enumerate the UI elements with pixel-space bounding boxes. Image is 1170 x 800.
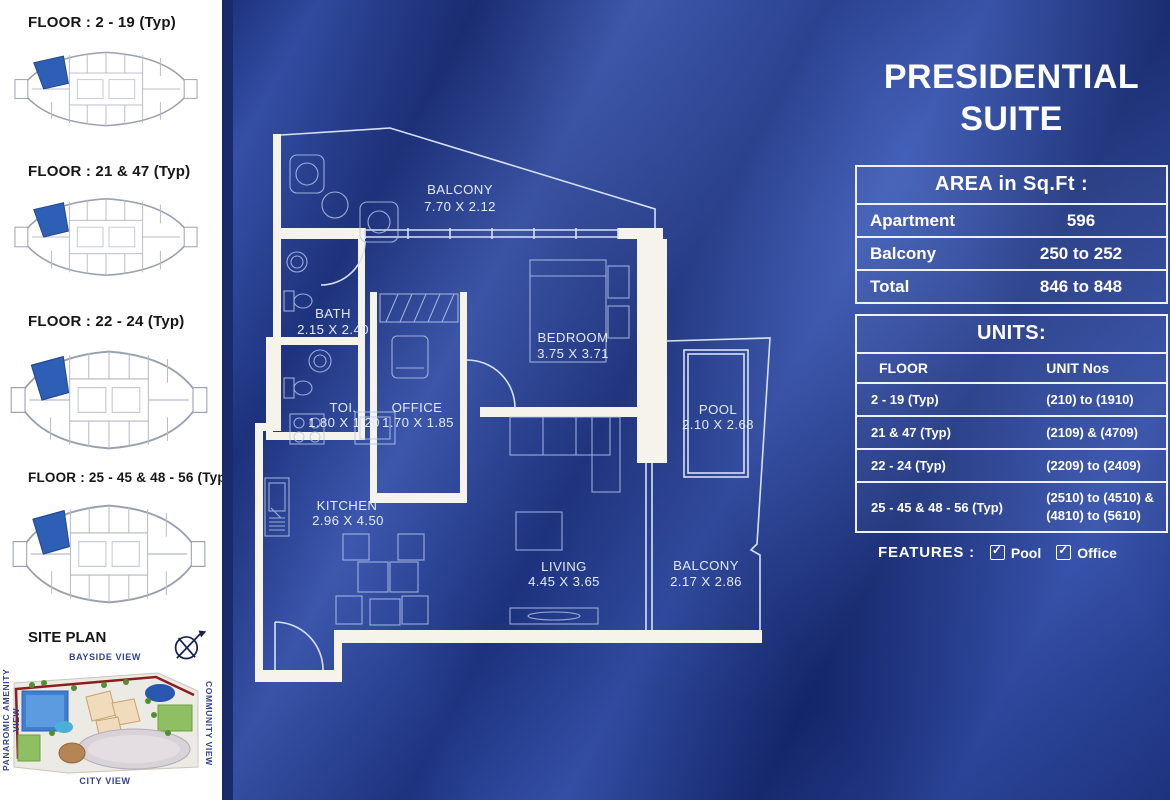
plan-furniture	[265, 155, 629, 625]
floor-plan-thumbnail-1	[12, 42, 200, 136]
office-checkbox-icon	[1056, 545, 1071, 560]
panaromic-amenity-view-label: PANAROMIC AMENITY VIEW	[1, 660, 21, 780]
area-value: 250 to 252	[996, 244, 1166, 264]
features-row: FEATURES : Pool Office	[878, 544, 1117, 561]
city-view-label: CITY VIEW	[35, 776, 175, 786]
site-plan-title: SITE PLAN	[28, 629, 106, 646]
area-row-apartment: Apartment 596	[857, 205, 1166, 238]
floor-plan: BALCONY 7.70 X 2.12 BATH 2.15 X 2.40 BED…	[240, 110, 800, 690]
units-col-units: UNIT Nos	[1036, 360, 1166, 376]
room-label-bath: BATH	[315, 306, 351, 321]
area-table: AREA in Sq.Ft : Apartment 596 Balcony 25…	[855, 165, 1168, 304]
area-value: 596	[996, 211, 1166, 231]
sidebar: FLOOR : 2 - 19 (Typ) FLOOR : 21 & 47 (Ty…	[0, 0, 222, 800]
features-label: FEATURES :	[878, 544, 975, 561]
units-floor: 22 - 24 (Typ)	[857, 458, 1036, 473]
room-label-pool: POOL	[699, 402, 737, 417]
units-table: UNITS: FLOOR UNIT Nos 2 - 19 (Typ) (210)…	[855, 314, 1168, 533]
units-row-3: 22 - 24 (Typ) (2209) to (2409)	[857, 450, 1166, 483]
page: FLOOR : 2 - 19 (Typ) FLOOR : 21 & 47 (Ty…	[0, 0, 1170, 800]
area-label: Apartment	[857, 211, 996, 231]
feature-pool: Pool	[990, 545, 1041, 561]
bayside-view-label: BAYSIDE VIEW	[35, 652, 175, 662]
units-floor: 2 - 19 (Typ)	[857, 392, 1036, 407]
site-plan-map	[8, 663, 204, 777]
room-dims-balcony-bottom: 2.17 X 2.86	[670, 574, 742, 589]
room-dims-pool: 2.10 X 2.68	[682, 417, 754, 432]
room-dims-bedroom: 3.75 X 3.71	[537, 346, 609, 361]
units-nos: (210) to (1910)	[1036, 391, 1166, 409]
units-row-4: 25 - 45 & 48 - 56 (Typ) (2510) to (4510)…	[857, 483, 1166, 531]
pool-checkbox-icon	[990, 545, 1005, 560]
room-dims-living: 4.45 X 3.65	[528, 574, 600, 589]
room-dims-balcony-top: 7.70 X 2.12	[424, 199, 496, 214]
room-dims-toi: 1.80 X 1.20	[308, 415, 380, 430]
units-col-floor: FLOOR	[857, 360, 1036, 376]
room-dims-bath: 2.15 X 2.40	[297, 322, 369, 337]
room-label-toi: TOI.	[329, 400, 356, 415]
floor-plan-label-3: FLOOR : 22 - 24 (Typ)	[28, 313, 184, 330]
room-label-bedroom: BEDROOM	[538, 330, 609, 345]
feature-office-label: Office	[1077, 545, 1117, 561]
floor-plan-label-2: FLOOR : 21 & 47 (Typ)	[28, 163, 190, 180]
room-dims-kitchen: 2.96 X 4.50	[312, 513, 384, 528]
units-nos: (2510) to (4510) & (4810) to (5610)	[1036, 489, 1166, 524]
page-title-line1: PRESIDENTIAL	[855, 56, 1168, 98]
room-label-balcony-top: BALCONY	[427, 182, 493, 197]
community-view-label: COMMUNITY VIEW	[204, 663, 214, 783]
area-label: Total	[857, 277, 996, 297]
page-title-line2: SUITE	[855, 98, 1168, 140]
units-floor: 21 & 47 (Typ)	[857, 425, 1036, 440]
units-column-headers: FLOOR UNIT Nos	[857, 354, 1166, 384]
room-label-balcony-bottom: BALCONY	[673, 558, 739, 573]
area-row-total: Total 846 to 848	[857, 271, 1166, 302]
area-label: Balcony	[857, 244, 996, 264]
room-label-office: OFFICE	[392, 400, 443, 415]
floor-plan-thumbnail-3	[8, 338, 210, 462]
floor-plan-thumbnail-4	[10, 492, 208, 616]
sidebar-divider	[222, 0, 233, 800]
units-row-2: 21 & 47 (Typ) (2109) & (4709)	[857, 417, 1166, 450]
room-dims-office: 1.70 X 1.85	[382, 415, 454, 430]
units-nos: (2109) & (4709)	[1036, 424, 1166, 442]
room-label-living: LIVING	[541, 559, 587, 574]
units-floor: 25 - 45 & 48 - 56 (Typ)	[857, 500, 1036, 515]
area-table-header: AREA in Sq.Ft :	[857, 167, 1166, 205]
room-label-kitchen: KITCHEN	[317, 498, 378, 513]
floor-plan-label-1: FLOOR : 2 - 19 (Typ)	[28, 14, 176, 31]
feature-pool-label: Pool	[1011, 545, 1041, 561]
area-value: 846 to 848	[996, 277, 1166, 297]
units-row-1: 2 - 19 (Typ) (210) to (1910)	[857, 384, 1166, 417]
units-table-header: UNITS:	[857, 316, 1166, 354]
feature-office: Office	[1056, 545, 1117, 561]
compass-icon	[170, 628, 208, 664]
area-row-balcony: Balcony 250 to 252	[857, 238, 1166, 271]
floor-plan-thumbnail-2	[12, 188, 200, 286]
page-title: PRESIDENTIAL SUITE	[855, 56, 1168, 140]
floor-plan-label-4: FLOOR : 25 - 45 & 48 - 56 (Typ)	[28, 470, 231, 485]
units-nos: (2209) to (2409)	[1036, 457, 1166, 475]
